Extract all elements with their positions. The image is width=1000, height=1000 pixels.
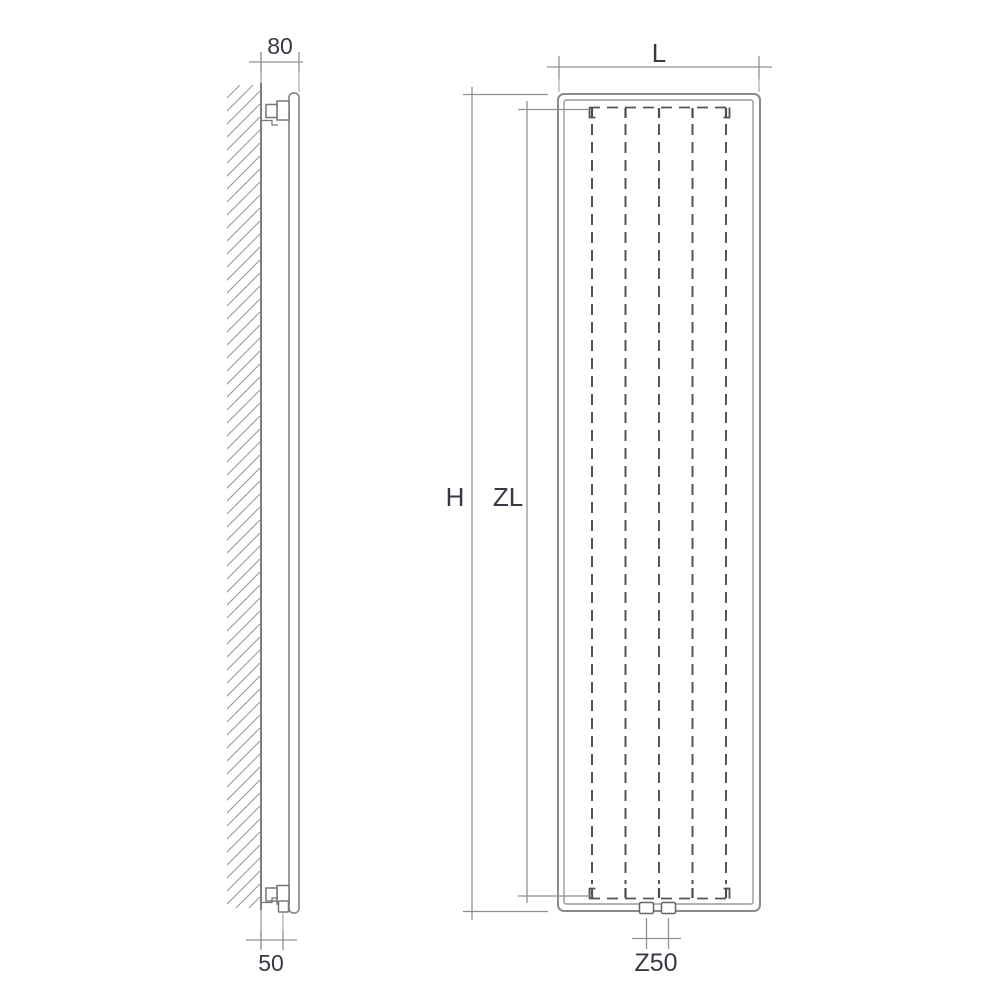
radiator-technical-drawing: 80 50 [0,0,1000,1000]
connection-fitting-left [640,903,654,914]
dimension-80: 80 [249,33,303,92]
dimension-80-label: 80 [267,33,293,59]
dimension-50: 50 [246,912,297,976]
mounting-bracket-top [262,101,289,125]
dimension-L-label: L [652,38,666,68]
dimension-ZL-label: ZL [493,482,523,512]
dimension-50-label: 50 [258,950,284,976]
dimension-Z50: Z50 [632,918,681,977]
bracket-step-top [262,121,278,126]
drawing-canvas: 80 50 [0,0,1000,1000]
bottom-connection-stub [279,901,289,912]
connection-fitting-right [662,903,676,914]
dimension-L: L [547,38,772,92]
front-view: L H ZL Z50 [446,38,772,977]
wall-hatch [227,85,261,908]
side-view: 80 50 [227,33,303,976]
bracket-wall-lug-top [266,105,277,118]
dimension-Z50-label: Z50 [634,949,677,977]
bracket-body-top [277,101,289,120]
radiator-panel-side [289,93,299,913]
mounting-bracket-bottom [262,886,289,913]
dimension-H-label: H [446,482,465,512]
